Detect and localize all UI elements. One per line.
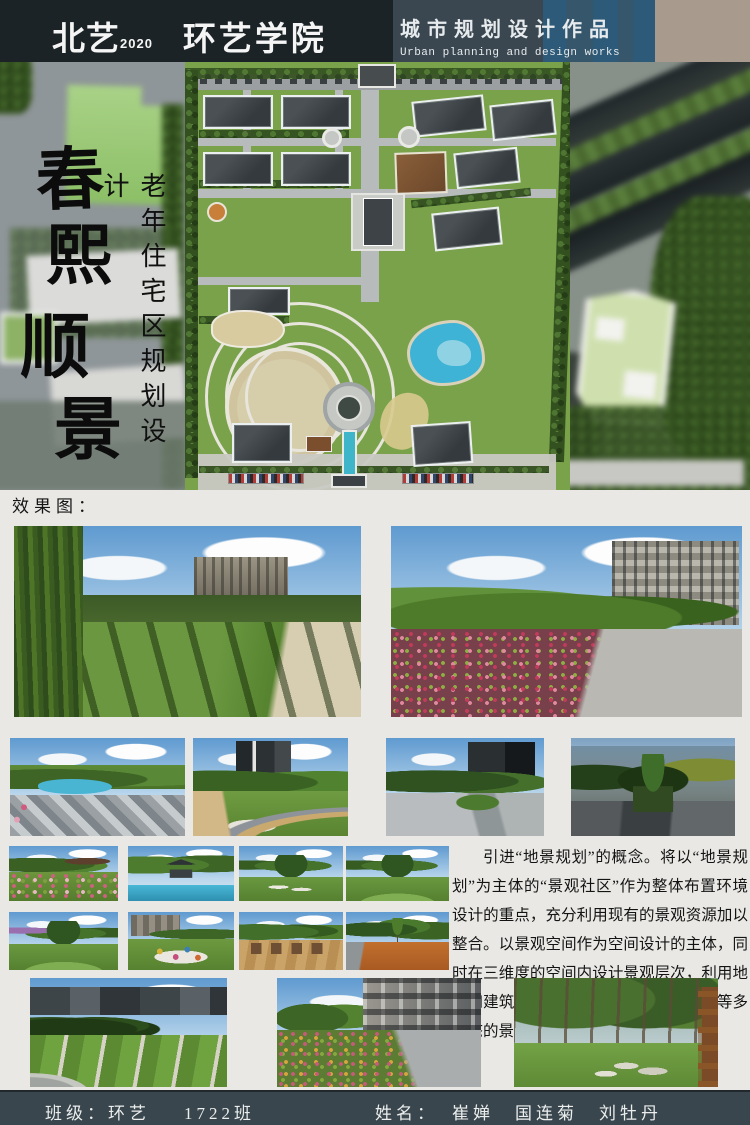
photo-ground: [386, 793, 544, 836]
renders-section-label: 效果图：: [12, 492, 100, 517]
photo-palm: [389, 918, 405, 942]
plan-circular-plaza: [398, 126, 420, 148]
footer-names: 姓名：崔婵 国连菊 刘牡丹: [375, 1099, 662, 1124]
plan-building: [411, 421, 474, 467]
plan-axis-pool: [342, 430, 357, 476]
plan-building: [489, 99, 556, 141]
render-water-pavilion: [128, 846, 234, 901]
logo-underline-group: 北艺2020: [52, 12, 157, 65]
photo-pool: [38, 779, 112, 794]
poster-title-cn: 城市规划设计作品: [400, 13, 650, 42]
render-palm-court: [346, 912, 449, 970]
render-apartment-garden: [277, 978, 481, 1087]
render-playground: [128, 912, 234, 970]
photo-ground: [128, 939, 234, 970]
photo-ground: [514, 1043, 718, 1087]
class-label: 班级：环艺: [45, 1104, 150, 1123]
render-lawn-field: [14, 526, 361, 717]
blurred-ground: [570, 460, 744, 486]
photo-treeline: [9, 855, 118, 874]
poster-title-block: 城市规划设计作品 Urban planning and design works: [400, 13, 650, 59]
plan-building: [281, 152, 351, 186]
plan-axis-building: [363, 198, 393, 246]
photo-ground: [9, 872, 118, 901]
photo-treeline: [239, 921, 343, 941]
design-description: 引进“地景规划”的概念。将以“地景规划”为主体的“景观社区”作为整体布置环境设计…: [452, 843, 748, 973]
plan-feature-circle: [207, 202, 227, 222]
photo-ground: [193, 791, 348, 836]
plan-community-center: [394, 151, 447, 195]
hero-masterplan-strip: 春 熙 顺 景 老年住宅区规划设计: [0, 62, 750, 490]
render-tree-island: [346, 846, 449, 901]
plan-parking-row: [402, 473, 474, 484]
logo-school-name: 北艺: [52, 20, 120, 57]
plan-pond-island: [437, 340, 471, 366]
plan-sand-garden: [211, 310, 285, 348]
plan-building: [411, 94, 486, 137]
render-pool-plaza: [10, 738, 185, 836]
photo-pergola: [698, 987, 718, 1087]
render-lawn-people: [9, 912, 118, 970]
poster-title-en: Urban planning and design works: [400, 47, 650, 59]
photo-water: [128, 885, 234, 902]
calligraphy-char: 春: [35, 145, 105, 215]
photo-ground: [391, 629, 742, 717]
photo-palm: [633, 754, 672, 813]
plan-building: [203, 152, 273, 186]
name-label: 姓名：: [375, 1104, 438, 1123]
school-logo: 北艺2020环艺学院: [52, 12, 327, 65]
photo-ground: [10, 795, 185, 836]
plan-parking-row: [228, 473, 304, 484]
plan-small-house: [306, 436, 332, 452]
photo-ground: [30, 1035, 227, 1087]
photo-ground: [239, 877, 343, 901]
plan-building: [232, 423, 292, 463]
photo-ground: [346, 877, 449, 901]
project-subtitle-vertical: 老年住宅区规划设计: [96, 172, 170, 484]
render-forest-lawn: [514, 978, 718, 1087]
photo-treeline: [386, 767, 544, 792]
plan-building: [281, 95, 351, 129]
footprint-courtyard: [623, 370, 658, 399]
render-courtyard-building: [193, 738, 348, 836]
names-value: 崔婵 国连菊 刘牡丹: [452, 1104, 662, 1123]
master-plan: [185, 62, 570, 490]
plan-building: [203, 95, 273, 129]
footer-bar: 班级：环艺1722班 姓名：崔婵 国连菊 刘牡丹: [0, 1090, 750, 1125]
tree-blob: [0, 62, 32, 114]
render-terraced-community: [30, 978, 227, 1087]
plan-tree-border: [185, 70, 198, 478]
photo-ground: [9, 944, 118, 970]
plan-hedge: [199, 466, 549, 473]
plan-building: [431, 207, 503, 252]
header-taupe-block: [655, 0, 750, 62]
header-bar: 北艺2020环艺学院 城市规划设计作品 Urban planning and d…: [0, 0, 750, 62]
render-flowerbed-road: [391, 526, 742, 717]
footprint-courtyard: [595, 317, 625, 342]
plan-south-gate: [331, 474, 367, 488]
photo-ground: [346, 942, 449, 970]
render-garden-pavilion: [9, 846, 118, 901]
photo-bamboo: [14, 526, 83, 717]
logo-college-name: 环艺学院: [183, 20, 327, 57]
footer-class: 班级：环艺1722班: [45, 1099, 255, 1124]
poster: 北艺2020环艺学院 城市规划设计作品 Urban planning and d…: [0, 0, 750, 1125]
render-sculpture-lawn: [239, 846, 343, 901]
hero-right-panel: [570, 62, 750, 490]
render-wood-deck: [239, 912, 343, 970]
hero-right-blur-layer: [570, 62, 750, 490]
plan-road: [198, 277, 363, 285]
render-entrance-plaza: [386, 738, 544, 836]
plan-roundabout-center: [336, 395, 362, 421]
plan-entrance-gate: [358, 64, 396, 88]
photo-trees: [514, 978, 718, 1050]
photo-planters: [251, 943, 326, 953]
class-value: 1722班: [184, 1104, 255, 1123]
photo-treeline: [193, 767, 348, 792]
photo-treeline: [277, 998, 363, 1035]
logo-year: 2020: [120, 36, 153, 51]
calligraphy-char: 顺: [20, 312, 90, 382]
photo-ground: [277, 1030, 481, 1087]
plan-building: [453, 147, 520, 189]
plan-circular-plaza: [322, 128, 342, 148]
hero-left-panel: 春 熙 顺 景 老年住宅区规划设计: [0, 62, 185, 490]
render-palm-road: [571, 738, 735, 836]
